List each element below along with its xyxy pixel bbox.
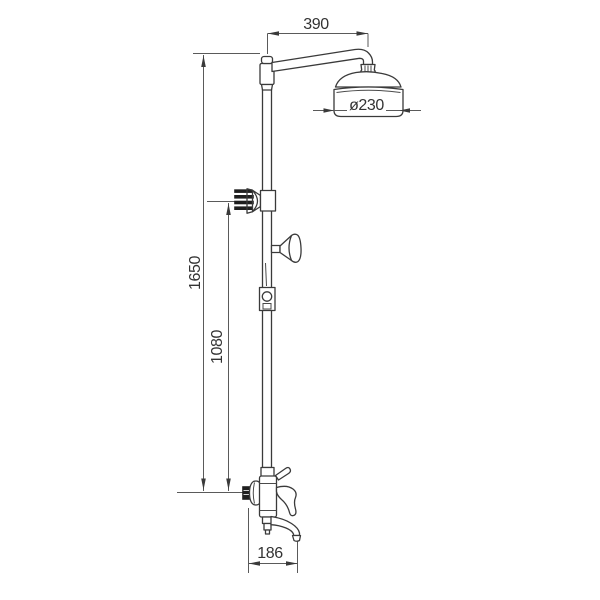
dim-arm-reach: 390 — [268, 16, 369, 54]
spout-outlet — [293, 536, 301, 542]
riser-tube — [263, 90, 272, 468]
mixer-faucet — [243, 468, 301, 542]
arrow-right-icon — [286, 561, 298, 566]
rain-shower-head: ø230 — [313, 72, 421, 117]
slider-clamp — [260, 288, 276, 311]
product-outline: ø230 — [235, 49, 422, 541]
escutcheon — [250, 481, 261, 505]
riser-column — [260, 57, 274, 468]
bracket-disc — [289, 234, 301, 262]
spray-nozzle-bar — [235, 201, 254, 204]
dim-upper-riser-height: 1080 — [207, 202, 235, 492]
diverter-lever — [276, 468, 291, 480]
clamp-knob — [262, 292, 271, 301]
dim-head-diameter: ø230 — [313, 96, 421, 114]
mixer-handle — [277, 486, 297, 515]
spray-nozzle-bar — [235, 207, 253, 210]
spout — [271, 517, 300, 536]
arm-tube — [272, 49, 373, 71]
shower-system-drawing: 1650 1080 390 — [0, 0, 600, 600]
mixer-cap-tip — [266, 530, 270, 534]
dim-label-head-diameter: ø230 — [349, 97, 384, 114]
handshower-holder — [261, 191, 276, 212]
mixer-cap-small — [264, 524, 271, 531]
riser-top-cap — [262, 57, 273, 64]
arrow-down-icon — [201, 479, 206, 491]
head-dome — [336, 72, 402, 87]
dim-total-height: 1650 — [177, 54, 260, 493]
arrow-right-icon — [357, 31, 369, 36]
riser-collar — [262, 85, 273, 91]
dim-label-arm-reach: 390 — [303, 16, 329, 33]
spray-nozzle-bar — [235, 195, 254, 198]
arrow-up-icon — [226, 204, 231, 216]
arrow-down-icon — [226, 479, 231, 491]
arrow-right-icon — [324, 108, 335, 112]
hand-shower — [235, 189, 276, 213]
dim-label-spout-reach: 186 — [257, 545, 283, 562]
wall-bracket — [272, 234, 302, 262]
technical-drawing-canvas: 1650 1080 390 — [0, 0, 600, 600]
arrow-left-icon — [268, 31, 280, 36]
bracket-stub — [272, 246, 281, 253]
dim-label-upper-riser: 1080 — [209, 330, 226, 364]
arrow-up-icon — [201, 56, 206, 68]
dim-label-total-height: 1650 — [187, 256, 204, 290]
mixer-top-connector — [261, 468, 274, 477]
